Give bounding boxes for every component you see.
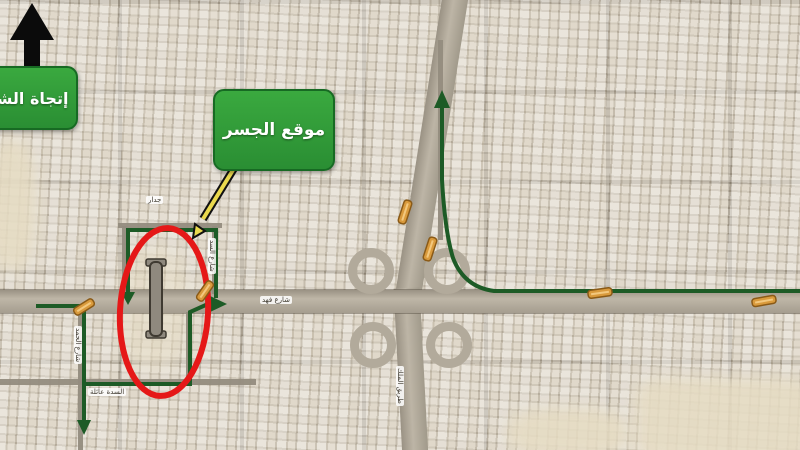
street-label-left: شارع الحمد: [74, 326, 82, 364]
local-street: [118, 223, 222, 228]
bridge-location-text: موقع الجسر: [223, 120, 325, 140]
cloverleaf-loop: [426, 322, 472, 368]
north-direction-label: إتجاة الشمال: [0, 66, 78, 130]
cloverleaf-loop: [424, 248, 470, 294]
street-label-right: شارع السد: [208, 238, 216, 274]
sand-patch: [508, 408, 628, 450]
local-street: [122, 226, 127, 294]
local-street: [438, 40, 443, 240]
street-label-highway: طريق الملك: [396, 366, 404, 406]
cloverleaf-loop: [350, 322, 396, 368]
main-road: [0, 290, 800, 313]
street-label-main-road: شارع فهد: [260, 296, 292, 304]
bridge-location-label: موقع الجسر: [213, 89, 335, 171]
local-street: [0, 379, 256, 385]
sand-patch: [0, 140, 36, 270]
north-direction-text: إتجاة الشمال: [0, 89, 68, 108]
sand-patch: [636, 378, 800, 450]
cloverleaf-loop: [348, 248, 394, 294]
satellite-map: إتجاة الشمال موقع الجسر جدار شارع السد ش…: [0, 0, 800, 450]
local-street: [186, 312, 191, 382]
street-label-top: جدار: [146, 196, 163, 204]
street-label-bottom: السدة عائلة: [88, 388, 126, 396]
